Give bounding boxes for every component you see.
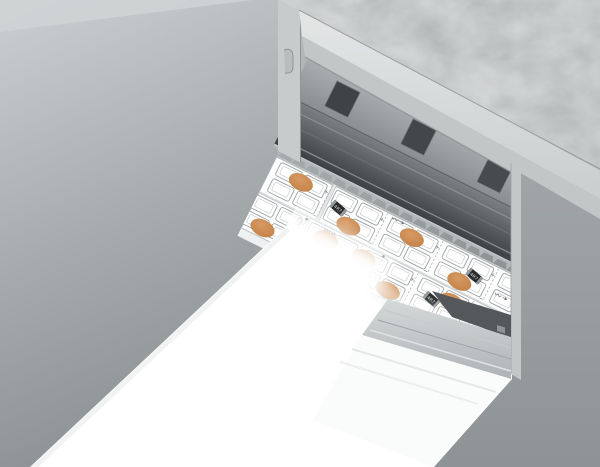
profile-end-cap-left xyxy=(278,0,301,163)
scene: + − 4R7 xyxy=(0,0,600,467)
profile-end-rim xyxy=(511,163,521,380)
led-profile-render: + − 4R7 xyxy=(0,0,600,467)
end-cap-clip-hook xyxy=(284,49,293,73)
